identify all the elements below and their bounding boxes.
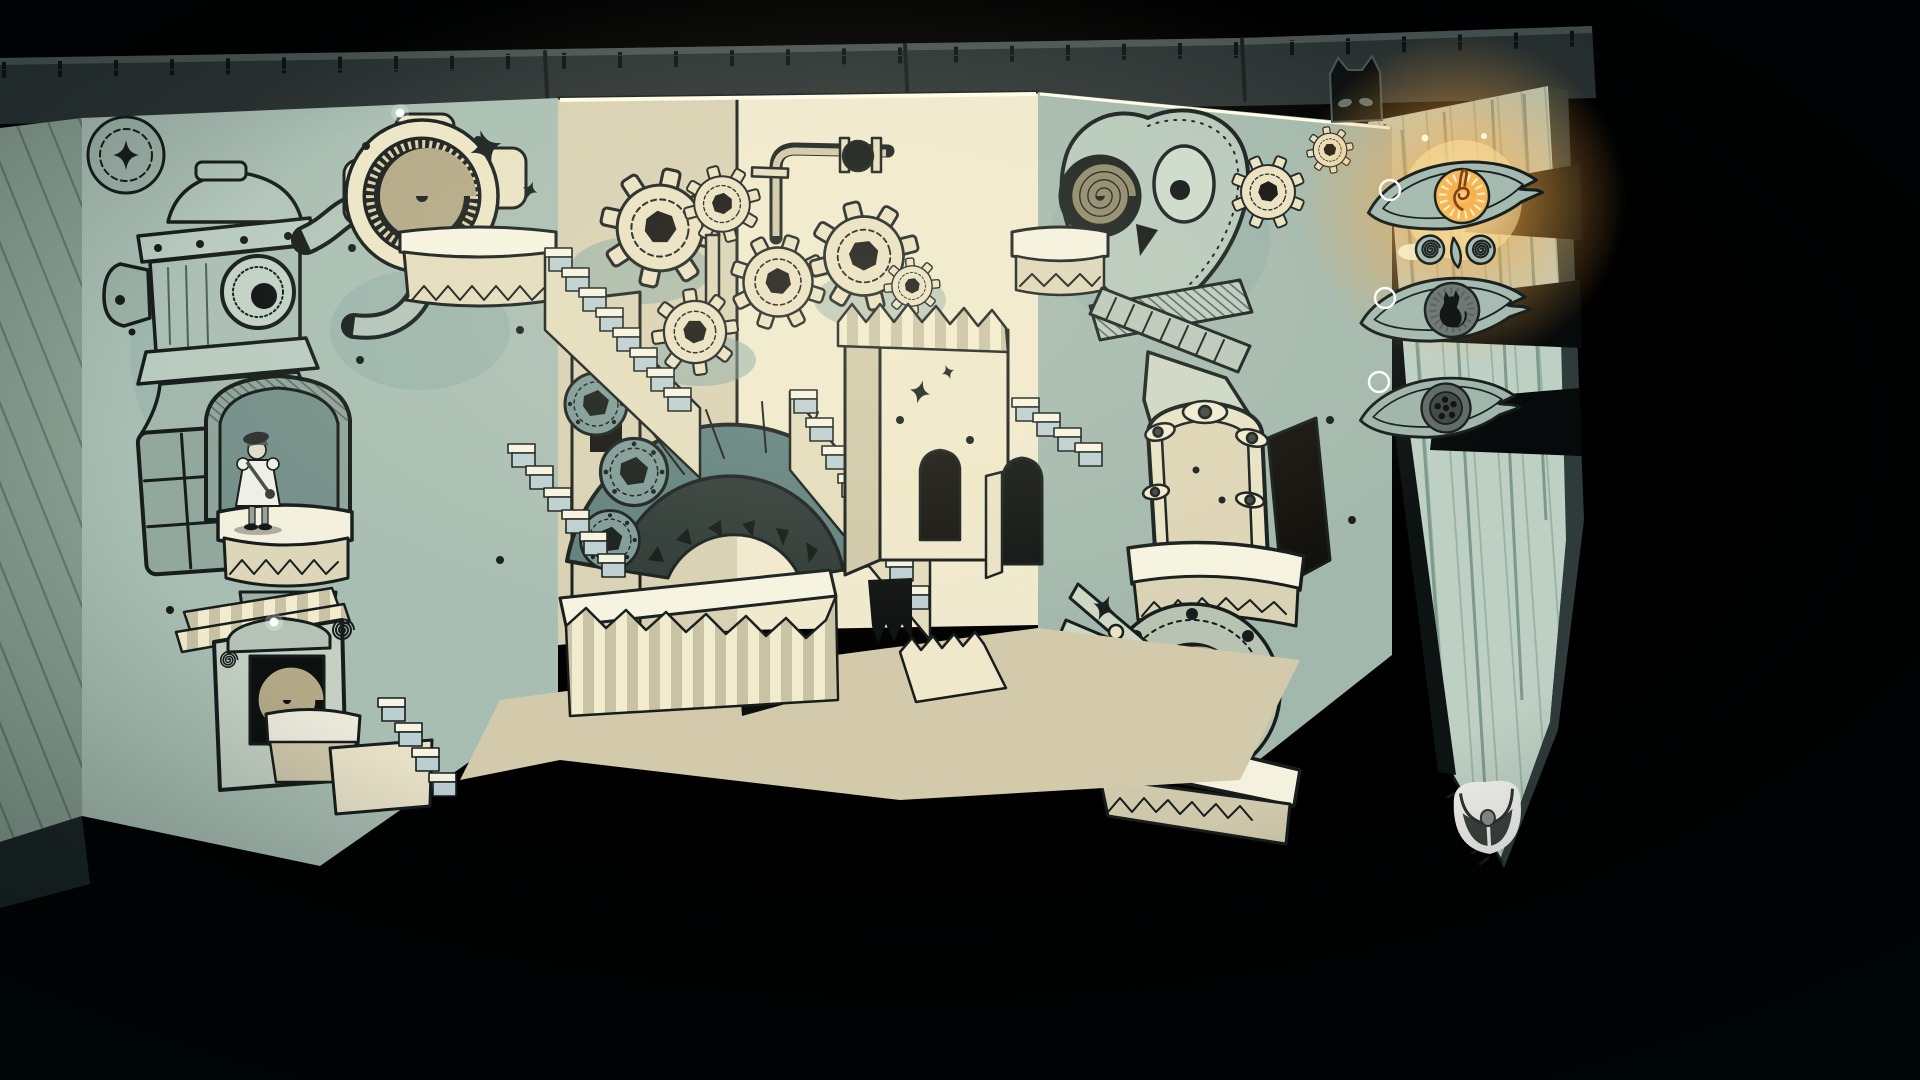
central-tower <box>838 304 1008 575</box>
popup-book-scene[interactable] <box>0 0 1920 1080</box>
upper-right-platform <box>1012 227 1108 295</box>
arch-door <box>1002 458 1042 564</box>
game-screen <box>0 0 1920 1080</box>
glint <box>396 109 405 118</box>
glint <box>270 618 279 627</box>
emblem-disc <box>88 117 164 193</box>
left-page-edge <box>0 118 90 908</box>
bag-clasp <box>1480 810 1495 827</box>
owl-face-machine <box>1060 110 1252 340</box>
upper-left-platform <box>400 227 556 306</box>
